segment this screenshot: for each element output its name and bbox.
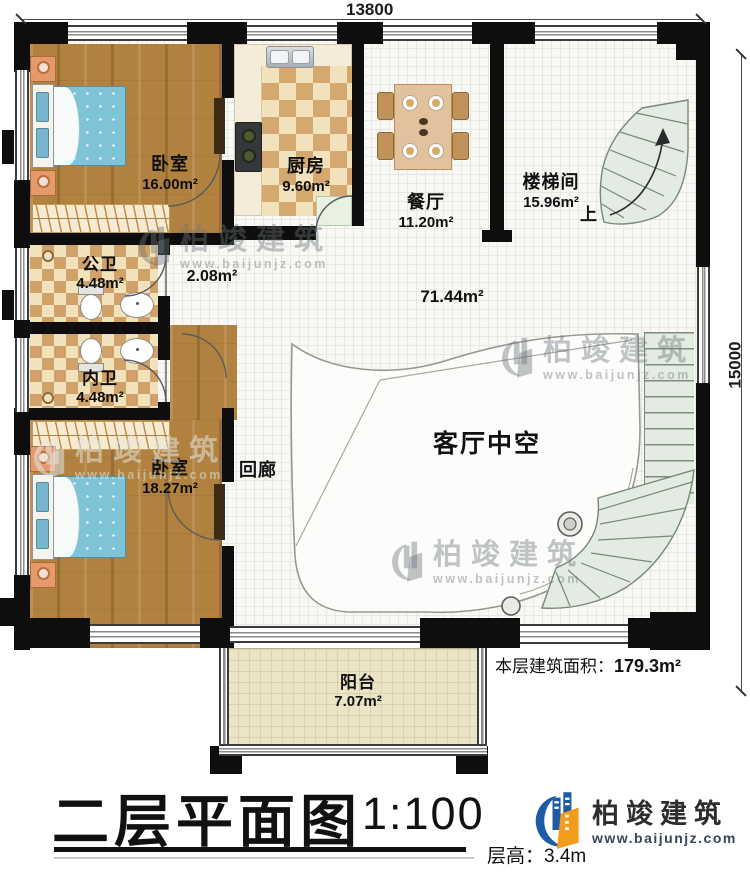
window <box>383 25 472 41</box>
nightstand <box>30 56 56 82</box>
dining-chair <box>452 92 469 120</box>
nightstand <box>30 562 56 588</box>
pillow <box>36 92 49 122</box>
floor-area-note: 本层建筑面积：179.3m² <box>495 652 681 677</box>
floor-plan-canvas: 卧室16.00m² 厨房9.60m² 餐厅11.20m² 楼梯间15.96m² … <box>0 0 750 872</box>
room-label-dining: 餐厅11.20m² <box>398 188 453 231</box>
dining-chair <box>377 132 394 160</box>
balcony-rail-bottom <box>219 744 487 756</box>
pillow <box>36 128 49 158</box>
stair-straight-run <box>644 332 694 504</box>
vestibule-floor <box>170 325 237 420</box>
nightstand <box>30 170 56 196</box>
window <box>15 455 29 575</box>
room-label-kitchen: 厨房9.60m² <box>282 152 330 195</box>
door-leaf <box>214 484 225 540</box>
pillow <box>36 519 49 549</box>
room-label-bedroom2: 卧室18.27m² <box>142 454 198 497</box>
window <box>15 248 29 320</box>
brand-logo: 柏竣建筑 www.baijunjz.com <box>530 790 737 857</box>
wash-basin <box>120 292 154 318</box>
brand-name: 柏竣建筑 <box>592 799 728 829</box>
brand-logo-icon <box>530 790 584 857</box>
void-area-label: 71.44m² <box>420 287 483 307</box>
dining-table <box>394 84 452 170</box>
room-label-bath-inner: 内卫4.48m² <box>76 364 124 406</box>
kitchen-stove <box>235 122 262 172</box>
drawing-scale: 1:100 <box>362 788 485 840</box>
window <box>520 624 628 644</box>
pillow <box>36 482 49 512</box>
dimension-height: 15000 <box>726 341 746 388</box>
window <box>535 25 657 41</box>
window <box>15 70 29 180</box>
dining-chair <box>452 132 469 160</box>
room-label-void: 客厅中空 <box>433 424 541 460</box>
window <box>247 25 337 41</box>
balcony-rail-left <box>219 648 229 750</box>
nightstand <box>30 446 56 472</box>
kitchen-mat <box>316 196 352 226</box>
dimension-width: 13800 <box>346 0 393 20</box>
window <box>68 25 187 41</box>
room-label-bath-public: 公卫4.48m² <box>76 250 124 292</box>
stair-up-label: 上 <box>580 200 597 225</box>
window <box>697 267 710 383</box>
kitchen-sink <box>266 46 314 68</box>
balcony-rail-right <box>477 648 487 750</box>
window <box>90 624 200 644</box>
wash-basin <box>120 338 154 364</box>
toilet-bowl <box>80 338 102 364</box>
room-label-corridor: 回廊 <box>239 456 277 482</box>
toilet-bowl <box>80 294 102 320</box>
door-leaf <box>214 98 225 154</box>
wardrobe <box>32 204 170 233</box>
shower-head <box>42 250 54 262</box>
title-underline-thin <box>54 857 474 859</box>
dining-chair <box>377 92 394 120</box>
room-label-stairwell: 楼梯间15.96m² <box>523 168 580 211</box>
brand-url: www.baijunjz.com <box>592 830 737 846</box>
room-label-bedroom1: 卧室16.00m² <box>142 150 198 193</box>
drawing-title: 二层平面图 <box>52 776 362 858</box>
title-underline <box>54 847 466 852</box>
balcony-sliding-door <box>230 626 420 643</box>
window <box>15 338 29 412</box>
room-label-balcony: 阳台7.07m² <box>334 668 382 710</box>
shower-head <box>42 392 54 404</box>
hall-area-label: 2.08m² <box>187 268 238 286</box>
